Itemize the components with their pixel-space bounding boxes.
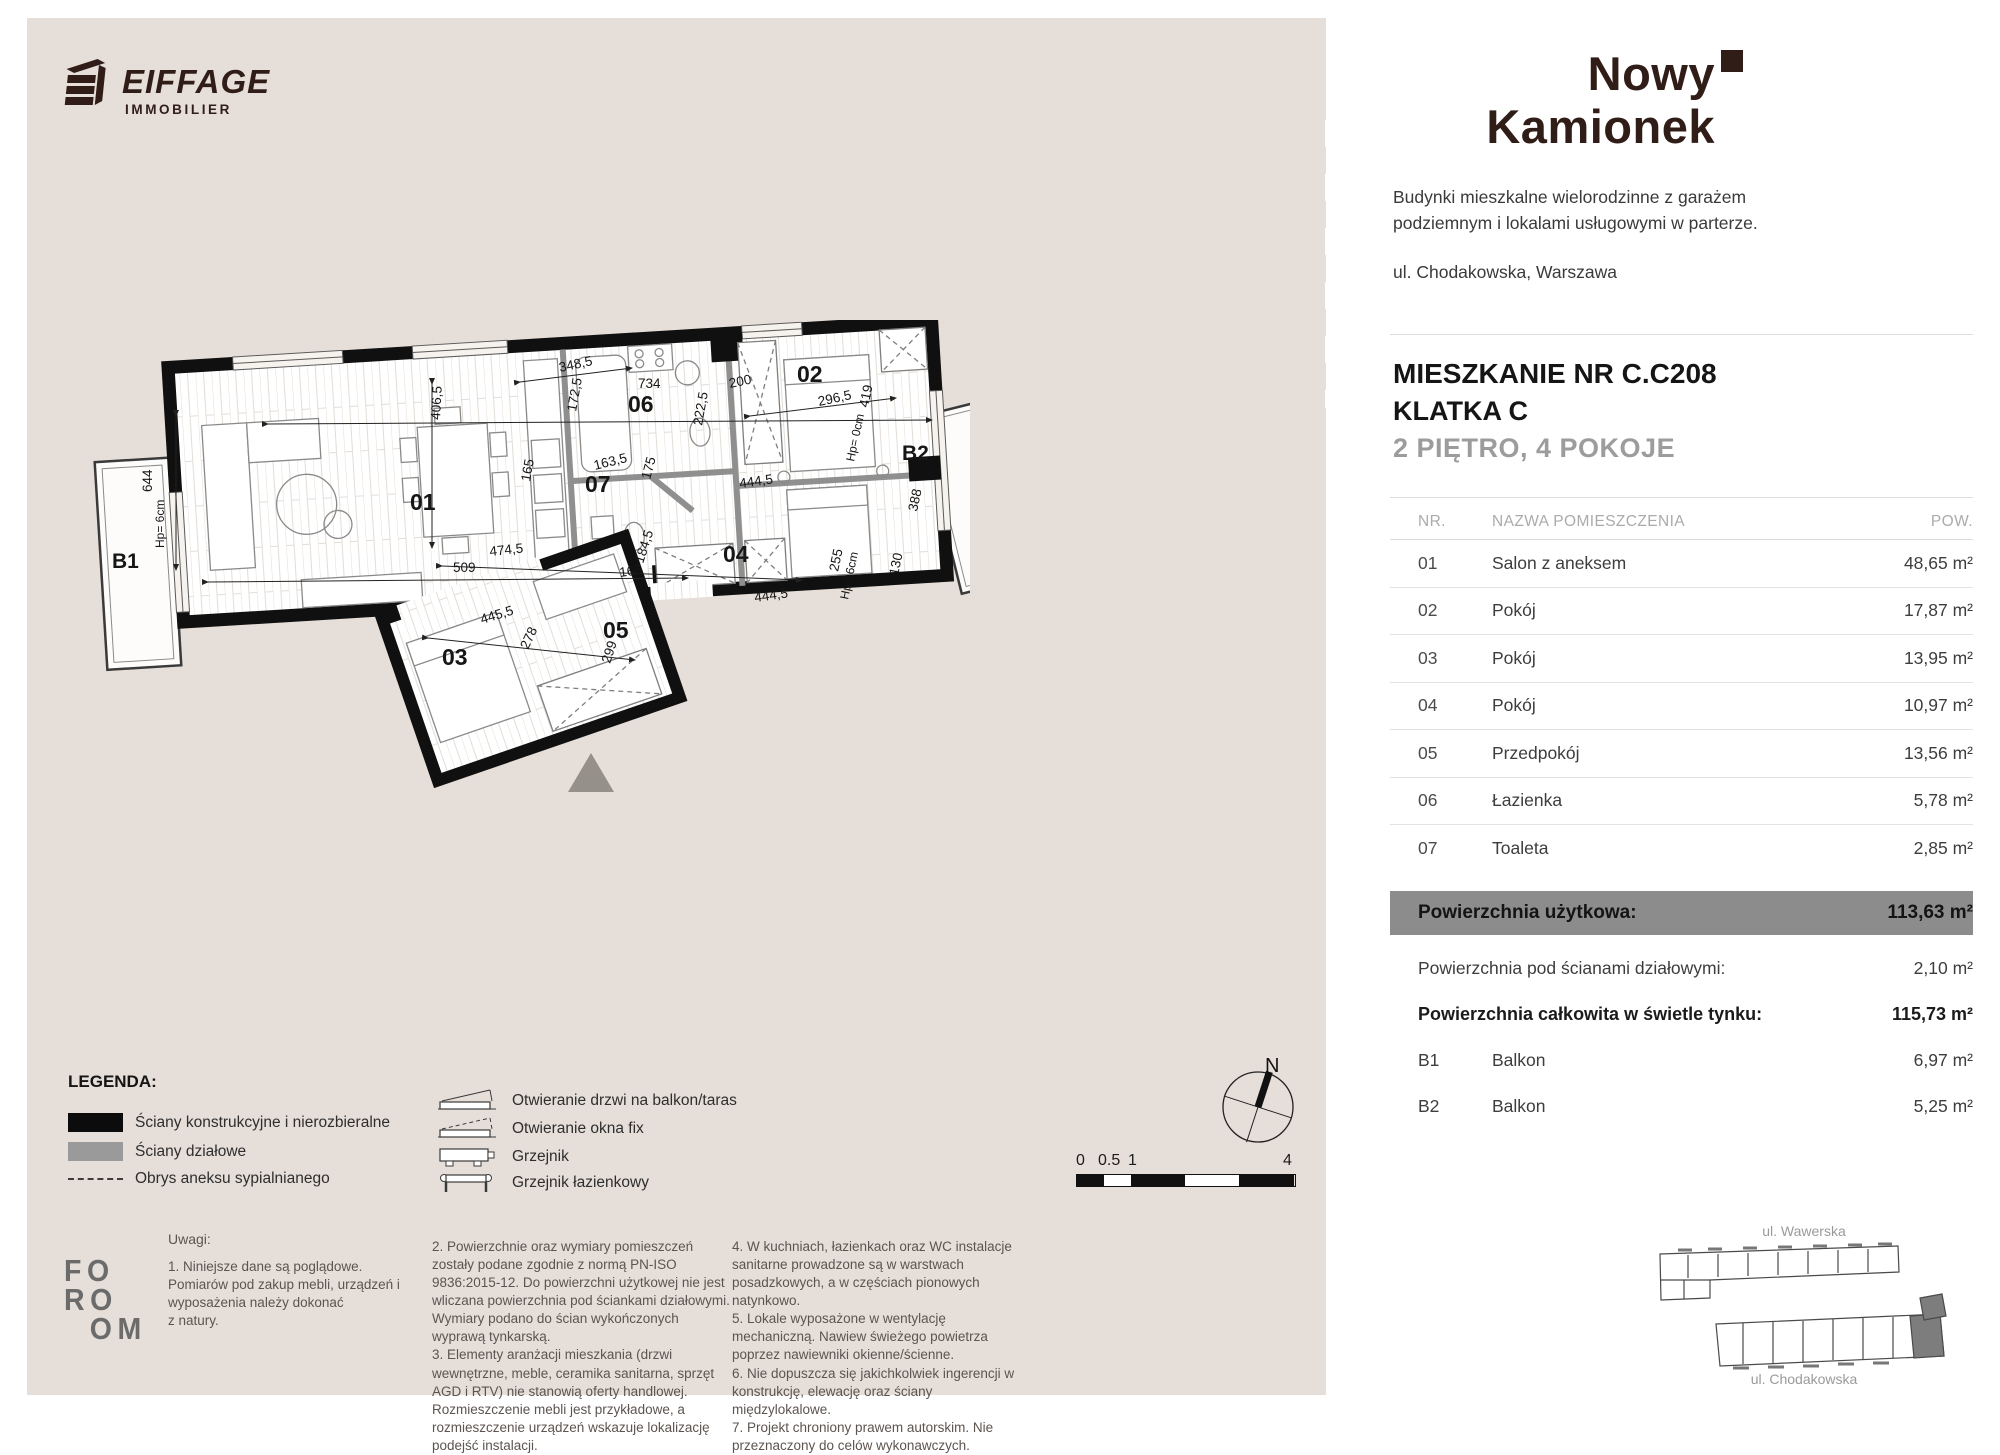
apartment-number: MIESZKANIE NR C.C208 (1393, 358, 1717, 390)
plan-label: 03 (442, 644, 468, 670)
divider (1390, 334, 1973, 335)
row-name: Toaleta (1492, 838, 1914, 859)
rooms-table-header: NR. NAZWA POMIESZCZENIA POW. (1390, 505, 1973, 540)
row-name: Pokój (1492, 695, 1904, 716)
balcony-nr: B1 (1390, 1050, 1492, 1071)
row-name: Łazienka (1492, 790, 1914, 811)
row-name: Pokój (1492, 600, 1904, 621)
project-description: Budynki mieszkalne wielorodzinne z garaż… (1393, 184, 1823, 237)
foroom-logo: FO RO OM (64, 1256, 147, 1343)
plan-label: 04 (723, 541, 749, 567)
plan-label: 406,5 (428, 386, 445, 421)
edge-comb-decoration (1325, 120, 1353, 408)
balcony-door-icon (436, 1088, 498, 1114)
foroom-row: FO (64, 1256, 147, 1285)
header-area: POW. (1931, 513, 1973, 531)
alcove-outline-swatch (68, 1178, 123, 1180)
plan-label: 01 (410, 489, 436, 515)
compass: N (1213, 1058, 1305, 1150)
legend-item: Otwieranie drzwi na balkon/taras (436, 1088, 737, 1114)
foroom-row: RO (64, 1285, 147, 1314)
balcony-nr: B2 (1390, 1096, 1492, 1117)
north-arrow (568, 753, 614, 792)
plan-label: 509 (453, 560, 476, 575)
bathroom-radiator-icon (436, 1170, 498, 1196)
summary-value: 2,10 m² (1914, 958, 1973, 979)
site-map: ul. Wawerska ul. Chodakowska (1648, 1222, 1960, 1390)
row-nr: 02 (1390, 600, 1492, 621)
scale-label: 0.5 (1098, 1152, 1120, 1170)
eiffage-logo-icon (60, 55, 112, 107)
notes-column-1: 1. Niniejsze dane są poglądowe. Pomiarów… (168, 1258, 468, 1330)
row-area: 17,87 m² (1904, 600, 1973, 621)
plan-label: Hp= 6cm (153, 500, 167, 548)
project-address: ul. Chodakowska, Warszawa (1393, 262, 1823, 283)
row-nr: 04 (1390, 695, 1492, 716)
legend-label: Ściany działowe (135, 1143, 246, 1161)
plan-label: 734 (638, 376, 661, 391)
balcony-row: B1 Balkon 6,97 m² (1390, 1037, 1973, 1083)
building-wawerska (1660, 1244, 1899, 1300)
table-row: 05 Przedpokój 13,56 m² (1390, 730, 1973, 778)
table-row: 07 Toaleta 2,85 m² (1390, 825, 1973, 872)
structural-wall-swatch (68, 1113, 123, 1132)
building-chodakowska (1716, 1294, 1946, 1368)
row-area: 13,95 m² (1904, 648, 1973, 669)
row-name: Salon z aneksem (1492, 553, 1904, 574)
table-row: 01 Salon z aneksem 48,65 m² (1390, 540, 1973, 588)
legend-item: Grzejnik łazienkowy (436, 1170, 649, 1196)
street-bottom-label: ul. Chodakowska (1751, 1371, 1858, 1387)
plan-label: B2 (902, 442, 929, 465)
plan-label: 02 (797, 361, 823, 387)
row-name: Pokój (1492, 648, 1904, 669)
legend-label: Otwieranie drzwi na balkon/taras (512, 1092, 737, 1110)
summary-value: 115,73 m² (1892, 1004, 1973, 1025)
floor-plan: 01020304050607B1B2734348,5172,5406,52002… (90, 320, 970, 800)
partition-wall-swatch (68, 1142, 123, 1161)
legend-item: Ściany konstrukcyjne i nierozbieralne (68, 1113, 390, 1132)
row-nr: 05 (1390, 743, 1492, 764)
table-row: 02 Pokój 17,87 m² (1390, 588, 1973, 636)
summary-row: Powierzchnia całkowita w świetle tynku: … (1390, 991, 1973, 1037)
project-title-line1: Nowy (1393, 48, 1715, 101)
legend-title: LEGENDA: (68, 1072, 157, 1092)
legend-label: Otwieranie okna fix (512, 1120, 644, 1138)
radiator-icon (436, 1144, 498, 1170)
row-area: 2,85 m² (1914, 838, 1973, 859)
legend-label: Obrys aneksu sypialnianego (135, 1170, 330, 1188)
apartment-staircase: KLATKA C (1393, 396, 1528, 427)
balcony-area: 5,25 m² (1914, 1096, 1973, 1117)
usable-area-bar: Powierzchnia użytkowa: 113,63 m² (1390, 891, 1973, 935)
street-top-label: ul. Wawerska (1762, 1223, 1846, 1239)
scale-label: 0 (1076, 1152, 1085, 1170)
row-area: 13,56 m² (1904, 743, 1973, 764)
notes-title: Uwagi: (168, 1231, 211, 1247)
balcony-area: 6,97 m² (1914, 1050, 1973, 1071)
apartment-floor-rooms: 2 PIĘTRO, 4 POKOJE (1393, 433, 1675, 464)
row-area: 48,65 m² (1904, 553, 1973, 574)
rooms-table: NR. NAZWA POMIESZCZENIA POW. 01 Salon z … (1390, 505, 1973, 872)
legend-label: Ściany konstrukcyjne i nierozbieralne (135, 1114, 390, 1132)
row-area: 5,78 m² (1914, 790, 1973, 811)
summary-label: Powierzchnia pod ścianami działowymi: (1390, 958, 1914, 979)
notes-column-3: 4. W kuchniach, łazienkach oraz WC insta… (732, 1238, 1032, 1455)
brand-name: EIFFAGE (122, 65, 270, 98)
scale-bar-segments (1076, 1174, 1296, 1187)
brand-subtitle: IMMOBILIER (125, 102, 270, 117)
row-nr: 06 (1390, 790, 1492, 811)
balcony-name: Balkon (1492, 1096, 1914, 1117)
balcony-row: B2 Balkon 5,25 m² (1390, 1083, 1973, 1129)
project-title: Nowy Kamionek (1393, 48, 1715, 153)
scale-bar: 0 0.5 1 4 (1076, 1152, 1296, 1187)
balcony-name: Balkon (1492, 1050, 1914, 1071)
legend-item: Grzejnik (436, 1144, 569, 1170)
legend-item: Otwieranie okna fix (436, 1116, 644, 1142)
foroom-row: OM (90, 1314, 147, 1343)
row-nr: 07 (1390, 838, 1492, 859)
plan-label: 05 (603, 617, 629, 643)
header-name: NAZWA POMIESZCZENIA (1492, 513, 1931, 531)
plan-label: 644 (140, 469, 155, 492)
eiffage-logo: EIFFAGE IMMOBILIER (60, 55, 270, 117)
notes-column-2: 2. Powierzchnie oraz wymiary pomieszczeń… (432, 1238, 732, 1455)
summary-row: Powierzchnia pod ścianami działowymi: 2,… (1390, 945, 1973, 991)
table-row: 06 Łazienka 5,78 m² (1390, 778, 1973, 826)
fixed-window-icon (436, 1116, 498, 1142)
apartment-card: { "brand":{"logo_text":"EIFFAGE","logo_s… (0, 0, 2000, 1413)
legend-item: Obrys aneksu sypialnianego (68, 1170, 330, 1188)
row-nr: 01 (1390, 553, 1492, 574)
plan-label: B1 (112, 550, 139, 573)
header-nr: NR. (1390, 513, 1492, 531)
legend-label: Grzejnik łazienkowy (512, 1174, 649, 1192)
usable-area-value: 113,63 m² (1887, 902, 1973, 924)
table-row: 04 Pokój 10,97 m² (1390, 683, 1973, 731)
divider (1390, 497, 1973, 498)
table-row: 03 Pokój 13,95 m² (1390, 635, 1973, 683)
row-nr: 03 (1390, 648, 1492, 669)
north-letter: N (1265, 1058, 1279, 1077)
legend-label: Grzejnik (512, 1148, 569, 1166)
project-title-line2: Kamionek (1393, 101, 1715, 154)
plan-label: 07 (585, 471, 611, 497)
scale-label: 4 (1283, 1152, 1292, 1170)
title-square-mark (1721, 50, 1743, 72)
row-name: Przedpokój (1492, 743, 1904, 764)
plan-label: 06 (628, 391, 654, 417)
summary-rows: Powierzchnia pod ścianami działowymi: 2,… (1390, 945, 1973, 1129)
legend-item: Ściany działowe (68, 1142, 246, 1161)
plan-label: 165 (618, 562, 642, 580)
usable-area-label: Powierzchnia użytkowa: (1418, 902, 1887, 924)
summary-label: Powierzchnia całkowita w świetle tynku: (1390, 1004, 1892, 1025)
row-area: 10,97 m² (1904, 695, 1973, 716)
scale-label: 1 (1128, 1152, 1137, 1170)
